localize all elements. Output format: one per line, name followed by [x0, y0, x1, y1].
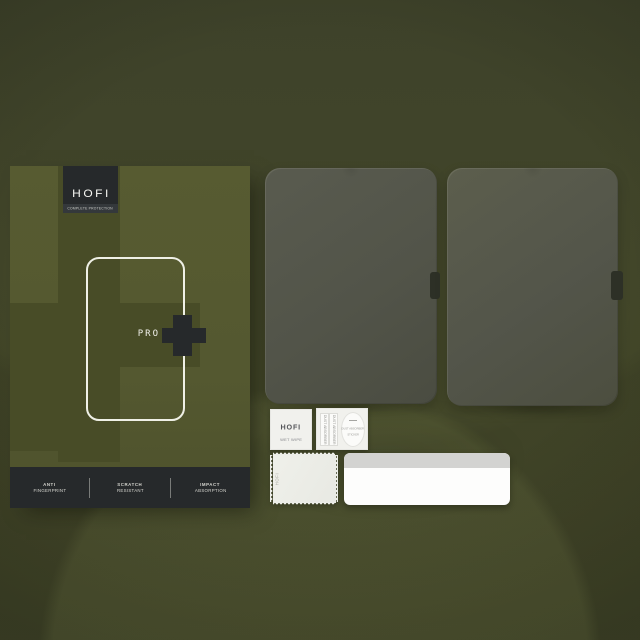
feature-line1: IMPACT — [200, 482, 220, 487]
cloth-zigzag-edge — [273, 502, 335, 505]
glass-protector-right — [447, 168, 618, 406]
cloth-zigzag-edge — [335, 455, 338, 502]
microfiber-cloth: HOFI — [270, 452, 338, 505]
wet-wipe-brand: HOFI — [281, 423, 301, 431]
feature-line1: ANTI — [43, 482, 55, 487]
product-photo: HOFI COMPLETE PROTECTION PRO ANTI FINGER… — [0, 0, 640, 640]
squeegee-card-band — [344, 453, 510, 468]
brand-logo: HOFI — [70, 186, 111, 199]
brand-tagline-strip: COMPLETE PROTECTION — [63, 204, 118, 213]
feature-line2: ABSORPTION — [195, 488, 227, 493]
feature-impact-absorption: IMPACT ABSORPTION — [171, 480, 250, 495]
box-pattern-corner-band — [10, 367, 58, 451]
camera-smudge — [524, 168, 542, 178]
product-box: HOFI COMPLETE PROTECTION PRO ANTI FINGER… — [10, 166, 250, 508]
cloth-zigzag-edge — [273, 452, 335, 455]
cloth-brand: HOFI — [275, 472, 279, 484]
brand-logo-block: HOFI COMPLETE PROTECTION — [63, 166, 118, 213]
camera-notch — [430, 272, 440, 299]
feature-line1: SCRATCH — [117, 482, 142, 487]
camera-smudge — [342, 168, 360, 178]
sticker-line: STICKER — [347, 434, 359, 436]
wet-wipe-packet: HOFI WET WIPE — [270, 409, 312, 450]
features-band: ANTI FINGERPRINT SCRATCH RESISTANT IMPAC… — [10, 467, 250, 508]
wet-wipe-label: WET WIPE — [280, 437, 302, 442]
sticker-text: DUST ABSORBER STICKER — [323, 426, 382, 438]
dust-sticker-circle: DUST ABSORBER STICKER — [341, 412, 365, 447]
feature-line2: RESISTANT — [117, 488, 144, 493]
sticker-line: DUST ABSORBER — [342, 428, 365, 430]
squeegee-card — [344, 453, 510, 505]
product-line-label: PRO — [128, 329, 160, 339]
plus-icon — [173, 315, 192, 356]
camera-notch — [611, 271, 623, 300]
feature-anti-fingerprint: ANTI FINGERPRINT — [10, 480, 89, 495]
cloth-zigzag-edge — [270, 455, 273, 502]
glass-protector-left — [265, 168, 437, 404]
feature-line2: FINGERPRINT — [33, 488, 66, 493]
dust-sticker-packet: DUST ABSORBER DUST ABSORBER DUST ABSORBE… — [316, 408, 368, 450]
brand-tagline: COMPLETE PROTECTION — [68, 207, 113, 211]
sticker-dash — [349, 420, 357, 421]
feature-scratch-resistant: SCRATCH RESISTANT — [90, 480, 169, 495]
cloth-surface — [273, 455, 336, 503]
